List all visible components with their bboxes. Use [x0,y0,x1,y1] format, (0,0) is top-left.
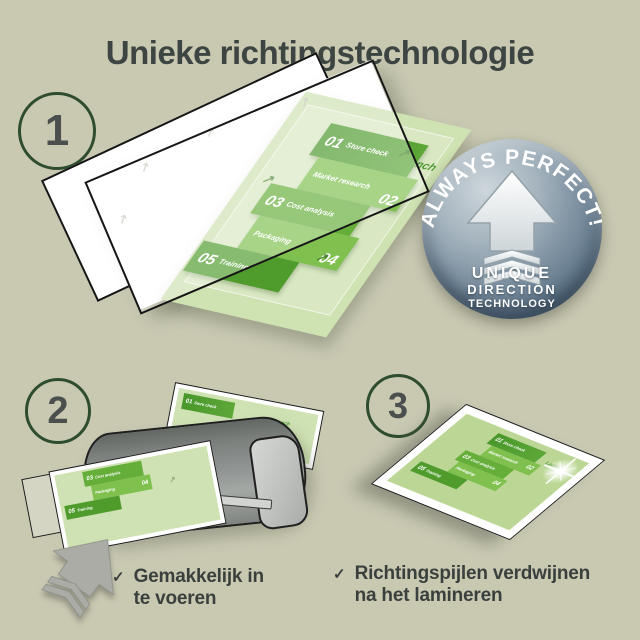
always-perfect-badge: ALWAYS PERFECT! UNIQUE DIRECTION TECHNOL… [422,139,602,319]
benefit-text: Richtingspijlen verdwijnen na het lamine… [355,563,591,608]
benefit-text: Gemakkelijk in te voeren [134,566,264,611]
badge-line-unique: UNIQUE [422,265,602,283]
step-3-number: 3 [388,385,408,427]
up-arrow-icon [468,171,556,251]
step-label: Packaging [95,487,115,495]
step-3-badge: 3 [366,374,430,438]
step-label: Cost analysis [95,470,121,479]
step-2-number: 2 [47,390,68,433]
benefit-item-arrows-disappear: ✓ Richtingspijlen verdwijnen na het lami… [333,563,633,608]
step-label: Store check [194,401,217,409]
check-icon: ✓ [333,565,346,583]
mini-step-1: 01 Store check [181,393,235,419]
product-infographic: Unieke richtingstechnologie 1 ↗ ↗ ↗ ↗ La… [0,0,640,640]
step-label: Training [77,506,93,513]
badge-line-technology: TECHNOLOGY [422,298,602,311]
badge-caption: UNIQUE DIRECTION TECHNOLOGY [422,265,602,311]
step-number: 03 [86,475,94,482]
arrow-doodle-icon: ↗ [168,474,176,484]
step-2-badge: 2 [25,378,91,444]
badge-line-direction: DIRECTION [422,283,602,298]
benefit-line: Gemakkelijk in [134,566,264,588]
step-label: Training [425,469,443,478]
benefit-line: na het lamineren [355,585,591,607]
benefit-line: te voeren [134,588,264,610]
step-number: 02 [523,465,534,472]
step-number: 04 [141,479,149,486]
benefit-line: Richtingspijlen verdwijnen [355,563,591,585]
step-1-number: 1 [45,106,69,156]
step-1-badge: 1 [18,92,96,170]
step-number: 04 [490,480,501,487]
step-number: 01 [185,398,193,405]
